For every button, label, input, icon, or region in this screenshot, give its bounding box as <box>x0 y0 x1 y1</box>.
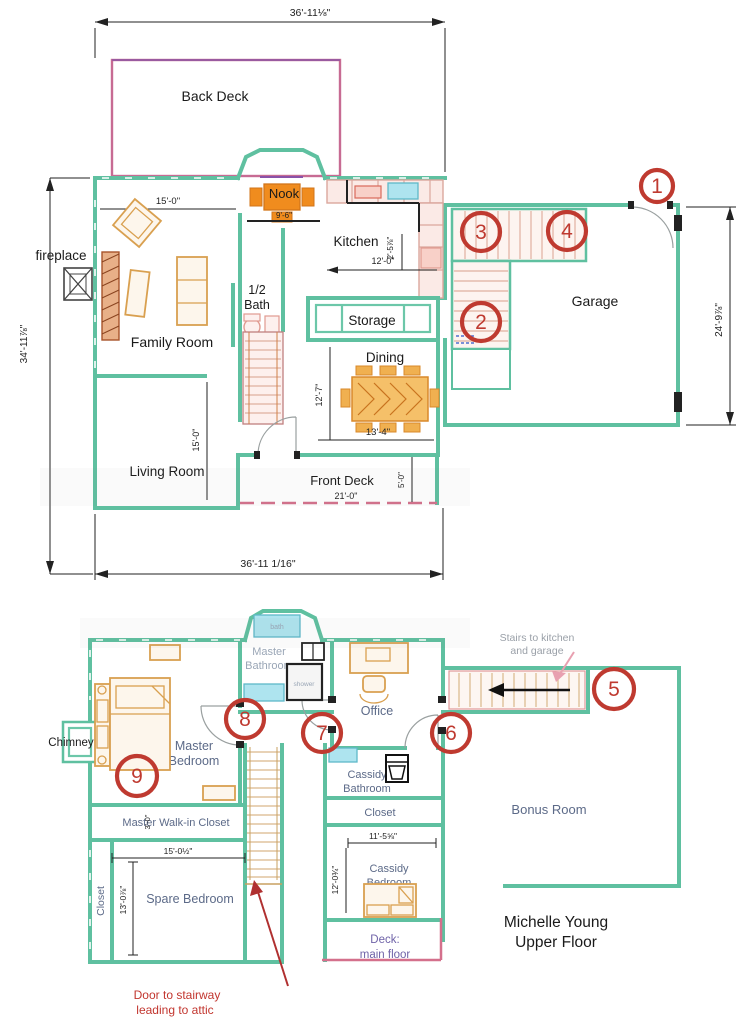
dim-spare-width: 15'-0½" <box>164 846 193 856</box>
spare-bedroom: Spare Bedroom Closet 15'-0½" 13'-0⅞" <box>95 846 245 955</box>
dim-kitchen-depth: 2'-5⅞" <box>386 237 395 260</box>
fireplace: fireplace <box>35 248 92 300</box>
dresser2-icon <box>203 786 235 800</box>
dimension-bottom-width: 36'-11 1/16" <box>95 508 443 580</box>
dim-cassidy-height: 12'-0¾" <box>330 866 340 895</box>
family-room-label: Family Room <box>131 334 213 350</box>
family-room: Family Room 15'-0" <box>100 196 236 350</box>
back-deck-label: Back Deck <box>182 88 250 104</box>
kitchen-label: Kitchen <box>333 234 378 249</box>
dim-walk-in-depth: 3'-0" <box>143 814 152 829</box>
cassidy-bathroom: Cassidy Bathroom <box>329 748 408 795</box>
half-bath-label-2: Bath <box>244 298 270 312</box>
half-bath-label-1: 1/2 <box>248 283 265 297</box>
master-bedroom-label-1: Master <box>175 739 213 753</box>
attic-note-1: Door to stairway <box>134 988 221 1002</box>
dimension-top-width: 36'-11⅛" <box>95 7 445 172</box>
stairs-to-kitchen <box>449 671 585 709</box>
master-bathroom: Master Bathroom shower <box>244 643 324 701</box>
side-table <box>125 270 149 317</box>
office: Office <box>350 643 408 718</box>
dim-garage-height: 24'-9⅞" <box>714 303 725 337</box>
caption-line-2: Upper Floor <box>515 934 597 951</box>
watermark-band <box>40 468 470 506</box>
half-bath: 1/2 Bath <box>244 283 279 336</box>
bonus-room-label: Bonus Room <box>511 802 586 817</box>
callout-1: 1 <box>641 170 673 202</box>
vanity-icon <box>244 684 284 701</box>
master-bathroom-label-2: Bathroom <box>245 660 293 672</box>
svg-text:4: 4 <box>561 220 573 243</box>
cassidy-bathroom-label-1: Cassidy <box>347 769 387 781</box>
main-floor-plan: Back Deck 36'-11⅛" 34'-11⅞" 36'-11 1/16" <box>19 7 736 580</box>
cassidy-bed-icon <box>364 884 416 917</box>
callout-5: 5 <box>594 669 634 709</box>
dining: Dining 13'-4" 12'-7" <box>314 347 439 440</box>
dim-bottom-width: 36'-11 1/16" <box>240 558 295 570</box>
dim-nook-width: 9'-6" <box>276 211 292 220</box>
cassidy-bathroom-label-2: Bathroom <box>343 783 391 795</box>
storage-label: Storage <box>348 313 395 328</box>
bookshelf <box>177 257 207 325</box>
stairs-note-1: Stairs to kitchen <box>500 632 575 644</box>
attic-staircase <box>245 747 282 884</box>
closet-left-label: Closet <box>95 886 107 916</box>
deck-main-floor: Deck: main floor <box>322 918 441 961</box>
dim-cassidy-width: 11'-5⅝" <box>369 831 397 841</box>
svg-text:3: 3 <box>475 221 487 244</box>
dimension-left-height: 34'-11⅞" <box>19 178 93 574</box>
deck-label-2: main floor <box>360 949 411 961</box>
sofa <box>102 252 119 340</box>
back-deck: Back Deck <box>112 60 340 176</box>
kitchen: Kitchen 12'-0" 2'-5⅞" <box>327 180 443 298</box>
dim-living-height: 15'-0" <box>191 429 201 452</box>
nook-label: Nook <box>269 186 300 201</box>
plan-caption: Michelle Young Upper Floor <box>504 914 608 951</box>
dim-spare-height: 13'-0⅞" <box>118 886 128 915</box>
hamper-icon <box>386 755 408 782</box>
cassidy-bedroom: 11'-5⅝" 12'-0¾" Cassidy Bedroom <box>330 831 436 917</box>
nook: Nook 9'-6" <box>247 177 320 222</box>
chimney: Chimney <box>48 722 97 762</box>
dim-left-height: 34'-11⅞" <box>19 324 30 363</box>
upper-floor-plan: Chimney bath Master Bathroom shower Offi… <box>48 611 679 1017</box>
deck-label-1: Deck: <box>370 934 399 946</box>
kitchen-sink <box>388 183 418 199</box>
fireplace-label: fireplace <box>35 248 86 263</box>
watermark-band-2 <box>80 618 470 648</box>
chimney-label: Chimney <box>48 737 94 749</box>
svg-text:2: 2 <box>475 311 487 334</box>
callout-8: 8 <box>226 700 264 738</box>
svg-text:7: 7 <box>316 722 328 745</box>
dim-dining-height: 12'-7" <box>314 384 324 407</box>
dim-family-width: 15'-0" <box>156 196 180 207</box>
svg-text:1: 1 <box>651 175 663 198</box>
floor-plan-image: Back Deck 36'-11⅛" 34'-11⅞" 36'-11 1/16" <box>0 0 743 1024</box>
dimension-garage-height: 24'-9⅞" <box>686 207 736 425</box>
svg-text:5: 5 <box>608 678 620 701</box>
svg-text:9: 9 <box>131 765 143 788</box>
office-label: Office <box>361 704 393 718</box>
walk-in-closet: Master Walk-in Closet 3'-0" <box>122 814 229 829</box>
dining-label: Dining <box>366 350 404 365</box>
caption-line-1: Michelle Young <box>504 914 608 931</box>
spare-bedroom-label: Spare Bedroom <box>146 892 234 906</box>
main-staircase <box>243 332 283 424</box>
svg-text:8: 8 <box>239 708 251 731</box>
shower-label: shower <box>294 681 316 688</box>
svg-text:6: 6 <box>445 722 457 745</box>
office-chair-icon <box>363 676 385 692</box>
stairs-note-2: and garage <box>510 645 563 657</box>
dim-top-width: 36'-11⅛" <box>290 7 331 19</box>
garage-label: Garage <box>572 293 619 309</box>
attic-note-2: leading to attic <box>136 1003 213 1017</box>
cassidy-bedroom-label-1: Cassidy <box>369 863 409 875</box>
master-bedroom-label-2: Bedroom <box>169 754 220 768</box>
walk-in-closet-label: Master Walk-in Closet <box>122 817 229 829</box>
armchair <box>113 199 161 247</box>
dim-dining-width: 13'-4" <box>366 427 390 438</box>
cassidy-closet-label: Closet <box>364 807 395 819</box>
